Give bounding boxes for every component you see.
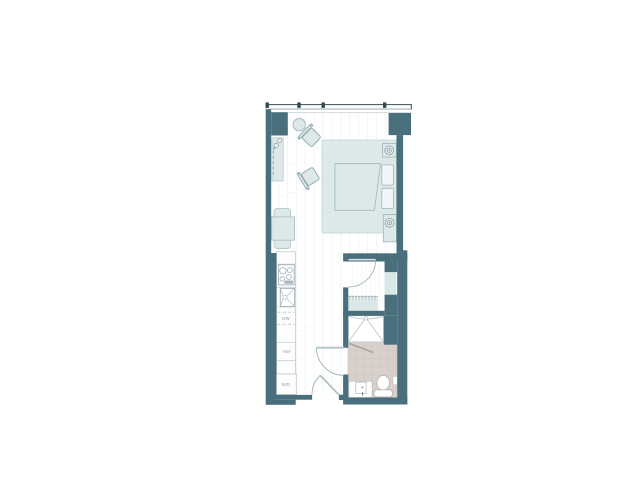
svg-text:W/D: W/D — [281, 382, 290, 387]
svg-text:DW: DW — [282, 316, 290, 321]
svg-text:REF: REF — [283, 349, 292, 354]
